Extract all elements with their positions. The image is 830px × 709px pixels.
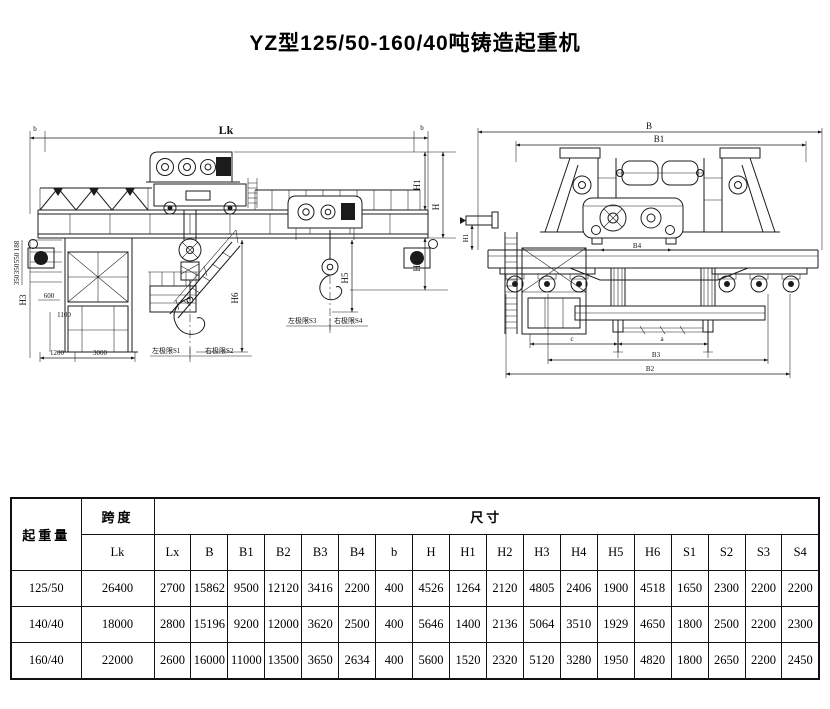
value-cell: 15862: [191, 571, 228, 607]
dim-col-header: S2: [708, 535, 745, 571]
d600-label: 600: [44, 292, 55, 300]
value-cell: 4526: [413, 571, 450, 607]
value-cell: 2450: [782, 643, 819, 680]
a-dim-label: a: [660, 335, 664, 343]
dim-col-header: H5: [597, 535, 634, 571]
value-cell: 2200: [339, 571, 376, 607]
h2-dim-label: H2: [412, 261, 422, 272]
value-cell: 400: [376, 607, 413, 643]
table-row: 125/50 26400 2700 15862 9500 12120 3416 …: [11, 571, 819, 607]
spec-table: 起重量 跨度 尺寸 Lk Lx B B1 B2 B3 B4 b H H1 H2 …: [10, 497, 820, 680]
value-cell: 2406: [560, 571, 597, 607]
h5-dim-label: H5: [340, 272, 350, 283]
d350b-label: 350: [13, 274, 21, 285]
value-cell: 9200: [228, 607, 265, 643]
h6-dim-label: H6: [230, 292, 240, 303]
value-cell: 3510: [560, 607, 597, 643]
table-header-row-2: Lk Lx B B1 B2 B3 B4 b H H1 H2 H3 H4 H5 H…: [11, 535, 819, 571]
d550-label: 550: [13, 252, 21, 263]
value-cell: 2650: [708, 643, 745, 680]
dim-col-header: S4: [782, 535, 819, 571]
dim-col-header: H6: [634, 535, 671, 571]
side-trolley-section: [583, 198, 683, 244]
dim-col-header: Lx: [154, 535, 191, 571]
b-left-dim-label: b: [33, 125, 37, 133]
dim-col-header: H4: [560, 535, 597, 571]
value-cell: 1400: [450, 607, 487, 643]
value-cell: 4820: [634, 643, 671, 680]
dim-col-header: b: [376, 535, 413, 571]
side-h1-dim-label: H1: [462, 233, 470, 242]
front-limit-labels: 左极限S1 右极限S2 左极限S3 右极限S4: [150, 316, 368, 362]
table-header-row-1: 起重量 跨度 尺寸: [11, 498, 819, 535]
value-cell: 400: [376, 571, 413, 607]
front-view: Lk b b: [13, 123, 456, 362]
front-truss-railing: [40, 188, 152, 210]
value-cell: 2120: [486, 571, 523, 607]
c-dim-label: c: [570, 335, 573, 343]
side-dim-bottom: c a B3 B2: [506, 294, 790, 378]
lk-cell: 22000: [81, 643, 154, 680]
value-cell: 2634: [339, 643, 376, 680]
capacity-cell: 160/40: [11, 643, 81, 680]
value-cell: 5600: [413, 643, 450, 680]
front-aux-hoist: [288, 196, 362, 240]
dim-col-header: S3: [745, 535, 782, 571]
capacity-cell: 125/50: [11, 571, 81, 607]
dim-col-header: B2: [265, 535, 302, 571]
dim-col-header: H1: [450, 535, 487, 571]
catalog-page: { "title": "YZ型125/50-160/40吨铸造起重机", "fr…: [0, 0, 830, 709]
value-cell: 2136: [486, 607, 523, 643]
lk-dim-label: Lk: [219, 123, 234, 137]
side-view: B B1: [460, 121, 822, 378]
capacity-header-cell: 起重量: [11, 498, 81, 571]
dim-col-header: H: [413, 535, 450, 571]
value-cell: 1650: [671, 571, 708, 607]
value-cell: 1520: [450, 643, 487, 680]
h3-dim-label: H3: [18, 294, 28, 305]
value-cell: 2600: [154, 643, 191, 680]
side-dim-b4: B4: [600, 242, 672, 250]
value-cell: 2500: [708, 607, 745, 643]
size-header-cell: 尺寸: [154, 498, 819, 535]
value-cell: 2320: [486, 643, 523, 680]
value-cell: 2300: [708, 571, 745, 607]
value-cell: 9500: [228, 571, 265, 607]
dim-col-header: B: [191, 535, 228, 571]
value-cell: 11000: [228, 643, 265, 680]
value-cell: 1800: [671, 643, 708, 680]
value-cell: 5646: [413, 607, 450, 643]
value-cell: 12000: [265, 607, 302, 643]
dim-col-header: B3: [302, 535, 339, 571]
b-dim-label: B: [646, 121, 652, 131]
front-aux-hook: [320, 230, 342, 330]
page-title: YZ型125/50-160/40吨铸造起重机: [0, 27, 830, 57]
limit-s1-label: 左极限S1: [152, 346, 181, 355]
value-cell: 2700: [154, 571, 191, 607]
table-row: 140/40 18000 2800 15196 9200 12000 3620 …: [11, 607, 819, 643]
side-lifting-beam: [575, 268, 765, 358]
b4-dim-label: B4: [633, 242, 642, 250]
d1100-label: 1100: [57, 311, 71, 319]
value-cell: 1800: [671, 607, 708, 643]
dim-col-header: S1: [671, 535, 708, 571]
d3000-label: 3000: [93, 349, 108, 357]
h-dim-label: H: [431, 203, 441, 210]
value-cell: 5064: [523, 607, 560, 643]
value-cell: 3620: [302, 607, 339, 643]
lk-cell: 18000: [81, 607, 154, 643]
value-cell: 1900: [597, 571, 634, 607]
d1200-label: 1200: [50, 349, 65, 357]
b-right-dim-label: b: [420, 124, 424, 132]
value-cell: 1264: [450, 571, 487, 607]
value-cell: 15196: [191, 607, 228, 643]
b3-dim-label: B3: [652, 351, 661, 359]
value-cell: 12120: [265, 571, 302, 607]
front-main-hook: [174, 210, 205, 360]
value-cell: 2200: [745, 571, 782, 607]
table-row: 160/40 22000 2600 16000 11000 13500 3650…: [11, 643, 819, 680]
front-dim-left-chain: 188 550 350 350 H3 600 1100 1200 3000: [13, 240, 135, 362]
h1-dim-label: H1: [412, 180, 422, 191]
value-cell: 400: [376, 643, 413, 680]
span-header-cell: 跨度: [81, 498, 154, 535]
value-cell: 5120: [523, 643, 560, 680]
value-cell: 2200: [745, 607, 782, 643]
front-dim-hooks: H6 H5: [196, 240, 358, 352]
d188-label: 188: [13, 240, 21, 251]
front-cab: [58, 238, 138, 352]
value-cell: 2800: [154, 607, 191, 643]
value-cell: 2200: [745, 643, 782, 680]
limit-s2-label: 右极限S2: [205, 346, 234, 355]
front-main-trolley: [146, 152, 257, 214]
side-buffer: H1: [460, 212, 498, 250]
b1-dim-label: B1: [654, 134, 665, 144]
value-cell: 4518: [634, 571, 671, 607]
limit-s3-label: 左极限S3: [288, 316, 317, 325]
value-cell: 2200: [782, 571, 819, 607]
front-stairs-platform: [148, 230, 240, 318]
value-cell: 3280: [560, 643, 597, 680]
dim-col-header: B4: [339, 535, 376, 571]
value-cell: 2300: [782, 607, 819, 643]
capacity-cell: 140/40: [11, 607, 81, 643]
value-cell: 4650: [634, 607, 671, 643]
value-cell: 3416: [302, 571, 339, 607]
d350a-label: 350: [13, 263, 21, 274]
value-cell: 2500: [339, 607, 376, 643]
side-bridge-band: [488, 250, 818, 280]
dim-col-header: H3: [523, 535, 560, 571]
dim-col-header: B1: [228, 535, 265, 571]
crane-technical-drawings: Lk b b: [0, 95, 830, 405]
lk-cell: 26400: [81, 571, 154, 607]
b2-dim-label: B2: [646, 365, 655, 373]
value-cell: 4805: [523, 571, 560, 607]
value-cell: 1929: [597, 607, 634, 643]
dim-col-header: H2: [486, 535, 523, 571]
limit-s4-label: 右极限S4: [334, 316, 363, 325]
value-cell: 13500: [265, 643, 302, 680]
value-cell: 1950: [597, 643, 634, 680]
value-cell: 3650: [302, 643, 339, 680]
value-cell: 16000: [191, 643, 228, 680]
span-sub-cell: Lk: [81, 535, 154, 571]
